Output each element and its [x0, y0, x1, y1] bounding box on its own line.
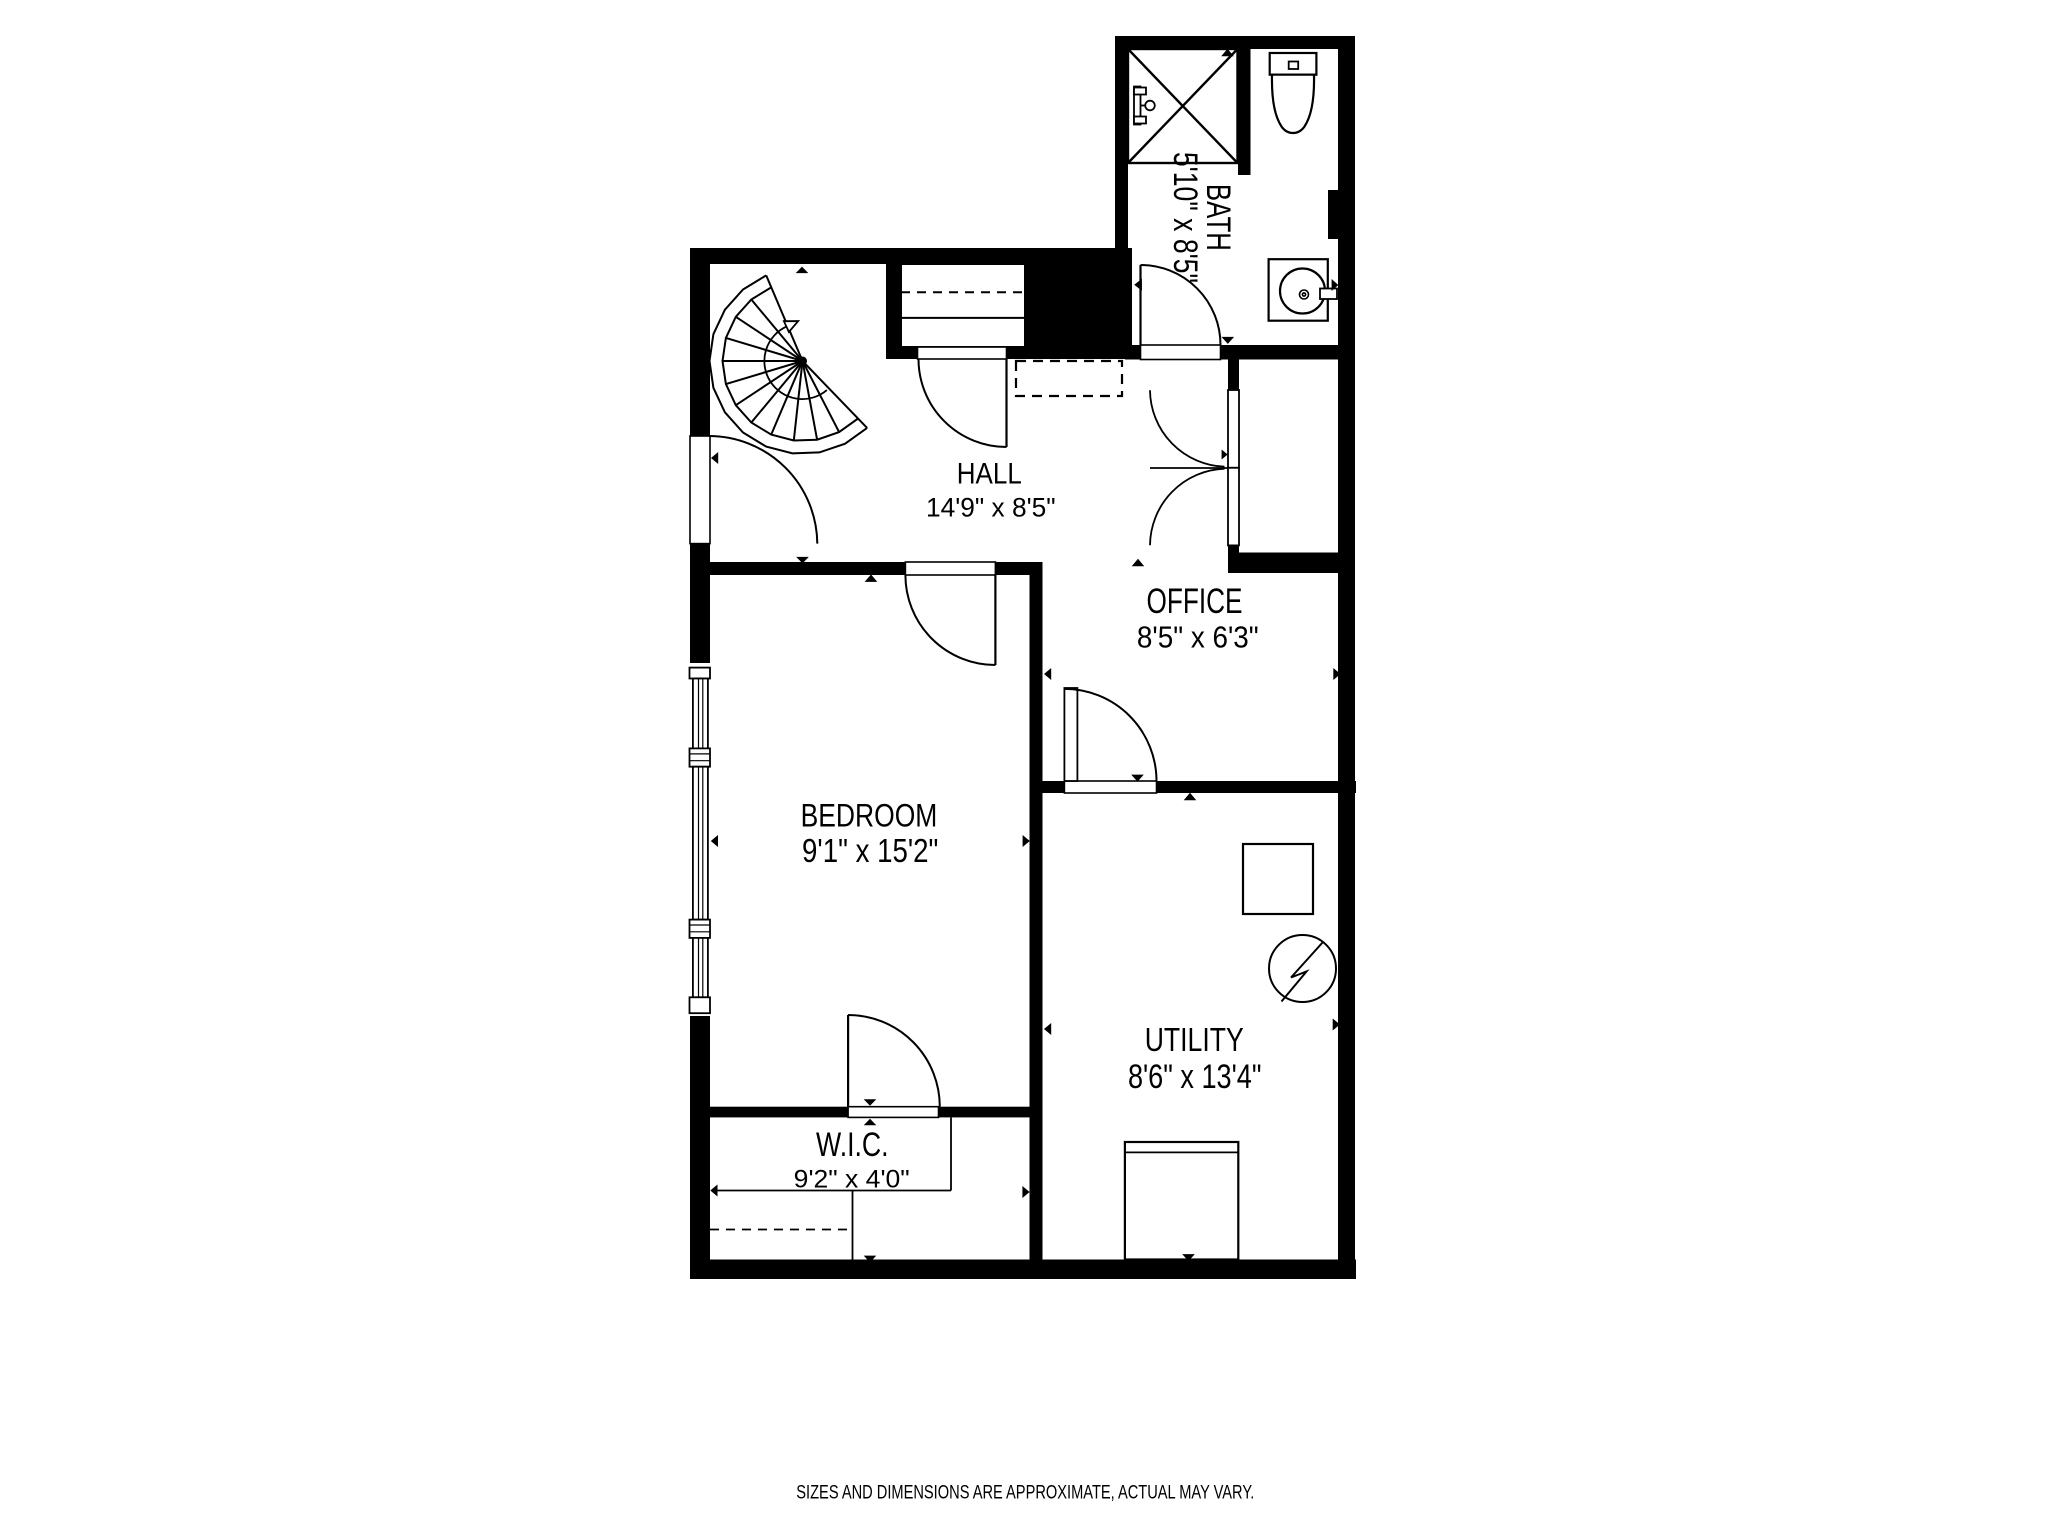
svg-text:9'1" x 15'2": 9'1" x 15'2" — [802, 832, 938, 869]
svg-text:8'5" x 6'3": 8'5" x 6'3" — [1137, 620, 1259, 655]
svg-text:8'6" x 13'4": 8'6" x 13'4" — [1128, 1058, 1262, 1096]
svg-text:BEDROOM: BEDROOM — [801, 798, 938, 834]
svg-text:SIZES AND DIMENSIONS ARE APPRO: SIZES AND DIMENSIONS ARE APPROXIMATE, AC… — [796, 1482, 1254, 1504]
svg-text:9'2" x 4'0": 9'2" x 4'0" — [794, 1165, 910, 1193]
svg-text:W.I.C.: W.I.C. — [816, 1126, 889, 1164]
svg-text:OFFICE: OFFICE — [1147, 582, 1243, 621]
svg-text:14'9" x 8'5": 14'9" x 8'5" — [926, 493, 1056, 523]
svg-text:5'10" x 8'5": 5'10" x 8'5" — [1166, 152, 1204, 283]
svg-text:UTILITY: UTILITY — [1145, 1021, 1244, 1058]
svg-text:HALL: HALL — [957, 458, 1022, 491]
